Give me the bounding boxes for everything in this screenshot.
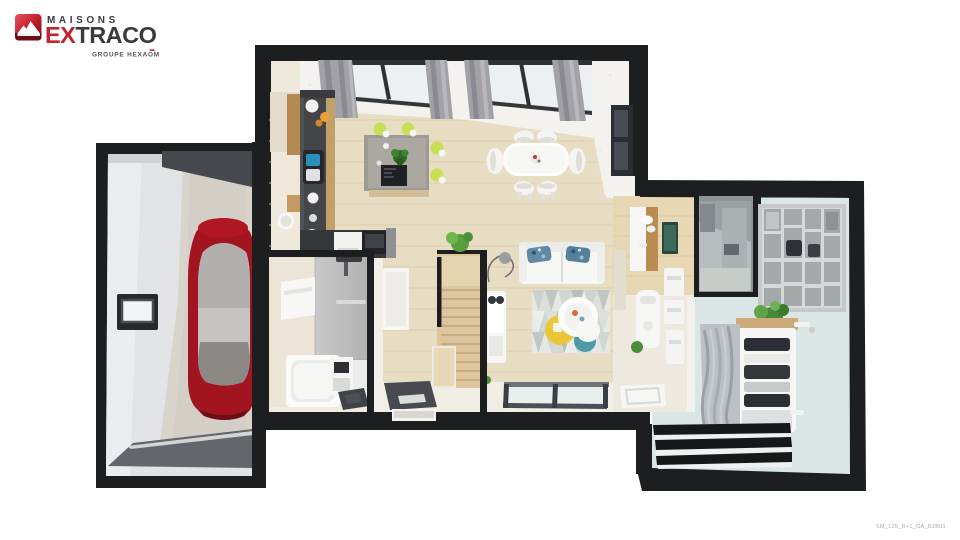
svg-text:GROUPE HEXAOM: GROUPE HEXAOM	[92, 52, 160, 59]
svg-text:EXTRACO: EXTRACO	[45, 22, 157, 48]
svg-text:SM_125_R+1_GA_B2B01: SM_125_R+1_GA_B2B01	[876, 524, 946, 530]
